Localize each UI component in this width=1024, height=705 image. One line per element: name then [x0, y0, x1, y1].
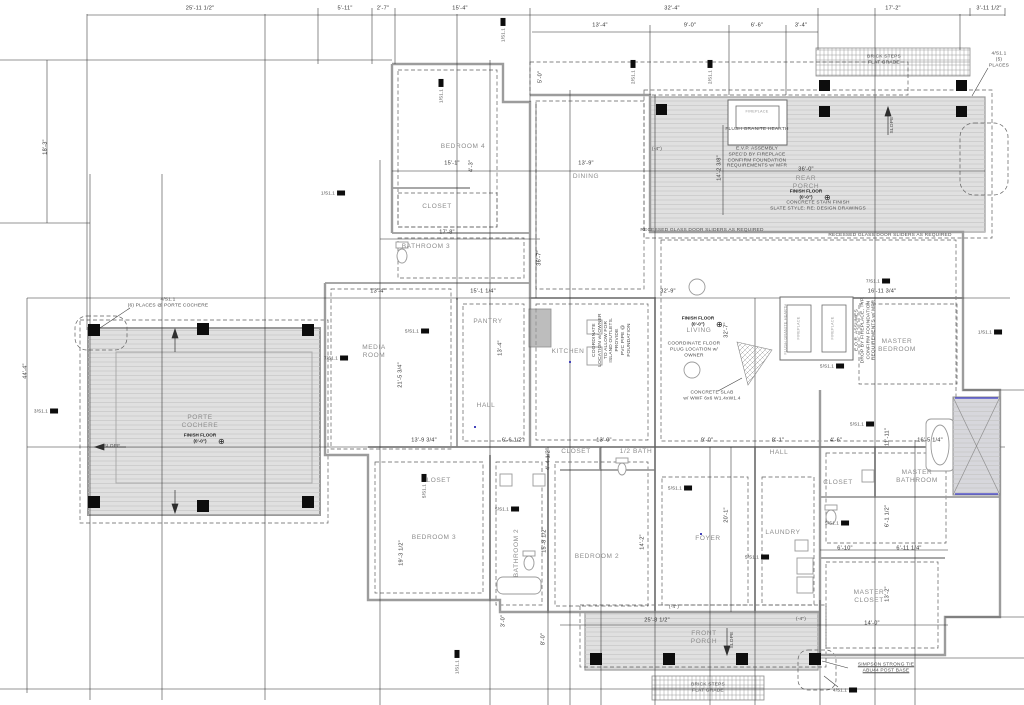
section-flag-icon	[708, 60, 713, 68]
room-label-bedroom-2: BEDROOM 2	[575, 553, 619, 561]
room-label-living: LIVING	[687, 327, 712, 335]
concrete-stain-note: CONCRETE STAIN FINISH SLATE STYLE: RE: D…	[770, 200, 866, 212]
section-flag-icon	[455, 650, 460, 658]
section-flag-label: 5/S1.1	[422, 484, 427, 498]
finish-floor-target-icon: ⊕	[218, 437, 225, 446]
fireplace-label-rear: FIREPLACE	[746, 110, 769, 115]
section-flag-icon	[761, 555, 769, 560]
dimension-text: 6'-10"	[837, 546, 852, 553]
room-label-rear-porch: REAR PORCH	[793, 175, 819, 191]
dimension-text: 5'-11"	[337, 6, 352, 13]
sliders-note-left: RECESSED GLASS DOOR SLIDERS AS REQUIRED	[640, 228, 763, 234]
section-flag: 3/S1.1	[34, 409, 58, 414]
dimension-text: 16'-5 1/4"	[917, 438, 943, 445]
room-label-closet-bedroom-3: CLOSET	[421, 477, 451, 485]
section-flag-icon	[631, 60, 636, 68]
section-flag-icon	[684, 486, 692, 491]
section-flag-icon	[501, 18, 506, 26]
section-flag-icon	[439, 79, 444, 87]
section-flag-icon	[882, 279, 890, 284]
island-outlets-note: COORDINATE LOCATION w/ OWNER TO ALLOW FO…	[592, 313, 632, 366]
section-flag-label: 5/S1.1	[745, 555, 759, 560]
dimension-text: 5'-0"	[538, 71, 545, 83]
room-label-half-bath: 1/2 BATH	[620, 448, 653, 456]
section-flag: 7/S1.1	[866, 279, 890, 284]
section-flag-label: 7/S1.1	[324, 356, 338, 361]
hearth-label-master: FLUSH GRANITE HEARTH	[784, 304, 789, 355]
dimension-text: 13'-4"	[498, 340, 505, 355]
section-flag: 2/S1.1	[708, 60, 713, 84]
floor-plan-canvas: BEDROOM 4CLOSETBATHROOM 3DININGMEDIA ROO…	[0, 0, 1024, 705]
section-flag: 1/S1.1	[455, 650, 460, 674]
room-label-bedroom-3: BEDROOM 3	[412, 534, 456, 542]
room-label-pantry: PANTRY	[473, 318, 502, 326]
dimension-text: 32'-7"	[724, 322, 731, 337]
dimension-text: 36'-0"	[798, 167, 813, 174]
dimension-text: 8'-0"	[541, 633, 548, 645]
slope-label-front-porch: SLOPE	[730, 632, 736, 649]
dimension-text: 13'-9"	[578, 161, 593, 168]
section-flag-label: 2/S1.1	[631, 70, 636, 84]
dimension-text: 6'-11 1/4"	[896, 546, 921, 553]
dimension-text: 32'-4"	[664, 6, 679, 13]
dimension-text: 11'-11"	[885, 428, 892, 446]
section-flag-icon	[849, 688, 857, 693]
section-flag-icon	[866, 422, 874, 427]
dimension-text: 15'-1 1/4"	[470, 289, 496, 296]
section-flag-label: 1/S1.1	[321, 191, 335, 196]
annotation-layer: BEDROOM 4CLOSETBATHROOM 3DININGMEDIA ROO…	[0, 0, 1024, 705]
section-flag-label: 5/S1.1	[825, 521, 839, 526]
section-flag-icon	[421, 329, 429, 334]
section-flag: 4/S1.1	[833, 688, 857, 693]
section-flag-icon	[836, 364, 844, 369]
dimension-text: 13'-0"	[596, 438, 611, 445]
dimension-text: 15'-4"	[452, 6, 467, 13]
room-label-master-bedroom: MASTER BEDROOM	[878, 338, 916, 354]
slope-label-rear-porch: SLOPE	[890, 117, 896, 134]
dimension-text: 4'-3"	[469, 160, 476, 172]
spot-elevation-front-left: (-4")	[669, 605, 679, 611]
section-flag: 5/S1.1	[745, 555, 769, 560]
dimension-text: 3'-0"	[501, 615, 508, 627]
slope-label-porte: SLOPE	[104, 444, 121, 450]
section-flag-label: 7/S1.1	[866, 279, 880, 284]
section-flag-label: 5/S1.1	[495, 507, 509, 512]
section-flag-label: 5/S1.1	[820, 364, 834, 369]
flush-hearth-note: FLUSH GRANITE HEARTH	[725, 127, 788, 133]
section-flag: 5/S1.1	[825, 521, 849, 526]
dimension-text: 3'-11 1/2"	[976, 6, 1001, 13]
section-flag: 5/S1.1	[668, 486, 692, 491]
room-label-kitchen: KITCHEN	[552, 348, 585, 356]
dimension-text: 25'-11 1/2"	[186, 6, 214, 13]
section-flag: 5/S1.1	[422, 474, 427, 498]
dimension-text: 14'-2"	[640, 534, 647, 549]
dimension-text: 17'-2"	[885, 6, 900, 13]
dimension-text: 14'-0"	[864, 621, 879, 628]
section-flag: 1/S1.1	[978, 330, 1002, 335]
room-label-dining: DINING	[573, 173, 599, 181]
dimension-text: 13'-2"	[885, 586, 892, 601]
sliders-note-right: RECESSED GLASS DOOR SLIDERS AS REQUIRED	[828, 233, 951, 239]
finish-floor-living: FINISH FLOOR (0'-0")	[682, 315, 714, 326]
section-flag-label: 1/S1.1	[455, 660, 460, 674]
dimension-text: 9'-0"	[684, 23, 696, 30]
finish-floor-porte-cochere: FINISH FLOOR (0'-0")	[184, 432, 216, 443]
spot-elevation-rear: (-4")	[652, 147, 662, 153]
room-label-hall-upper: HALL	[477, 402, 496, 410]
dimension-text: 6'-6 1/2"	[502, 438, 524, 445]
dimension-text: 3'-4"	[795, 23, 807, 30]
fireplace-assembly-note: E.V.P. ASSEMBLY SPEC'D BY FIREPLACE CONF…	[727, 147, 787, 170]
dimension-text: 6'-6"	[751, 23, 763, 30]
room-label-media-room: MEDIA ROOM	[362, 344, 386, 360]
section-flag-label: 3/S1.1	[34, 409, 48, 414]
section-flag: 1/S1.1	[321, 191, 345, 196]
dimension-text: 13'-4"	[592, 23, 607, 30]
brick-steps-rear-note: BRICK STEPS FLAT GRADE	[867, 54, 901, 66]
section-flag-label: 5/S1.1	[405, 329, 419, 334]
dimension-text: 6'-1 1/2"	[885, 505, 892, 527]
dimension-text: 44'-4"	[23, 363, 30, 378]
dimension-text: 15'-8 1/2"	[542, 527, 549, 553]
dimension-text: 18'-3"	[43, 139, 50, 154]
section-flag-label: 2/S1.1	[708, 70, 713, 84]
section-flag: 1/S1.1	[501, 18, 506, 42]
section-flag: 7/S1.1	[324, 356, 348, 361]
dimension-text: 4'-4 1/2"	[546, 448, 553, 470]
dimension-text: 4'-6"	[830, 438, 842, 445]
dimension-text: 19'-3 1/2"	[399, 540, 406, 566]
dimension-text: 13'-9 3/4"	[411, 438, 437, 445]
room-label-bedroom-4: BEDROOM 4	[441, 143, 485, 151]
section-flag-icon	[841, 521, 849, 526]
dimension-text: 14'-2 3/8"	[717, 155, 724, 181]
dimension-text: 16'-11 3/4"	[868, 289, 896, 296]
dimension-text: 9'-0"	[701, 438, 713, 445]
dimension-text: 21'-5 3/4"	[398, 362, 405, 388]
fireplace-drop-note: E.O.R. ASSUMES DROP BY FIREPLACE, TYP. C…	[855, 297, 878, 364]
section-flag-label: 5/S1.1	[668, 486, 682, 491]
fireplace-label-left: FIREPLACE	[797, 317, 802, 340]
section-flag-icon	[50, 409, 58, 414]
dimension-text: 25'-8 1/2"	[644, 618, 670, 625]
section-flag: 5/S1.1	[495, 507, 519, 512]
room-label-closet-master-hall: CLOSET	[823, 479, 853, 487]
dimension-text: 13'-4"	[370, 289, 385, 296]
section-flag-label: 1/S1.1	[978, 330, 992, 335]
room-label-bathroom-3: BATHROOM 3	[402, 243, 451, 251]
rear-porch-post-callout: 4/S1.1 (5) PLACES	[987, 51, 1012, 68]
room-label-porte-cochere: PORTE COCHERE	[182, 414, 219, 430]
section-flag-icon	[422, 474, 427, 482]
dimension-text: 17'-8"	[439, 230, 454, 237]
room-label-closet-foyer: CLOSET	[561, 448, 591, 456]
spot-elevation-front-right: (-4")	[796, 617, 806, 623]
brick-steps-front-note: BRICK STEPS FLAT GRADE	[691, 682, 725, 694]
dimension-text: 20'-1"	[724, 507, 731, 522]
finish-floor-target-icon: ⊕	[824, 193, 831, 202]
room-label-foyer: FOYER	[695, 535, 720, 543]
section-flag-label: 5/S1.1	[850, 422, 864, 427]
room-label-bathroom-2: BATHROOM 2	[513, 529, 521, 578]
simpson-post-base-note: SIMPSON STRONG TIE ABU44 POST BASE	[858, 662, 914, 674]
concrete-slab-note: CONCRETE SLAB w/ WWF 6x6 W1.4xW1.4	[683, 390, 740, 402]
fireplace-label-right: FIREPLACE	[831, 317, 836, 340]
section-flag-icon	[337, 191, 345, 196]
section-flag: 5/S1.1	[405, 329, 429, 334]
section-flag-icon	[994, 330, 1002, 335]
room-label-master-bathroom: MASTER BATHROOM	[896, 469, 938, 485]
porte-cochere-post-callout: 4/S1.1 (6) PLACES @ PORTE COCHERE	[128, 297, 209, 309]
room-label-laundry: LAUNDRY	[765, 529, 800, 537]
section-flag-icon	[340, 356, 348, 361]
section-flag-icon	[511, 507, 519, 512]
dimension-text: 15'-1"	[444, 161, 459, 168]
floor-plug-note: COORDINATE FLOOR PLUG LOCATION w/ OWNER	[668, 341, 721, 358]
section-flag-label: 4/S1.1	[833, 688, 847, 693]
room-label-master-closet: MASTER CLOSET	[854, 589, 885, 605]
dimension-text: 32'-9"	[660, 289, 675, 296]
room-label-hall-lower: HALL	[770, 449, 789, 457]
finish-floor-rear-porch: FINISH FLOOR (0'-0")	[790, 188, 822, 199]
section-flag: 1/S1.1	[439, 79, 444, 103]
dimension-text: 36'-7"	[537, 250, 544, 265]
dimension-text: 2'-7"	[377, 6, 389, 13]
section-flag-label: 1/S1.1	[439, 89, 444, 103]
room-label-front-porch: FRONT PORCH	[691, 630, 717, 646]
dimension-text: 8'-1"	[772, 438, 784, 445]
section-flag-label: 1/S1.1	[501, 28, 506, 42]
section-flag: 5/S1.1	[820, 364, 844, 369]
section-flag: 5/S1.1	[850, 422, 874, 427]
room-label-closet-bedroom-4: CLOSET	[422, 203, 452, 211]
section-flag: 2/S1.1	[631, 60, 636, 84]
finish-floor-target-icon: ⊕	[716, 320, 723, 329]
